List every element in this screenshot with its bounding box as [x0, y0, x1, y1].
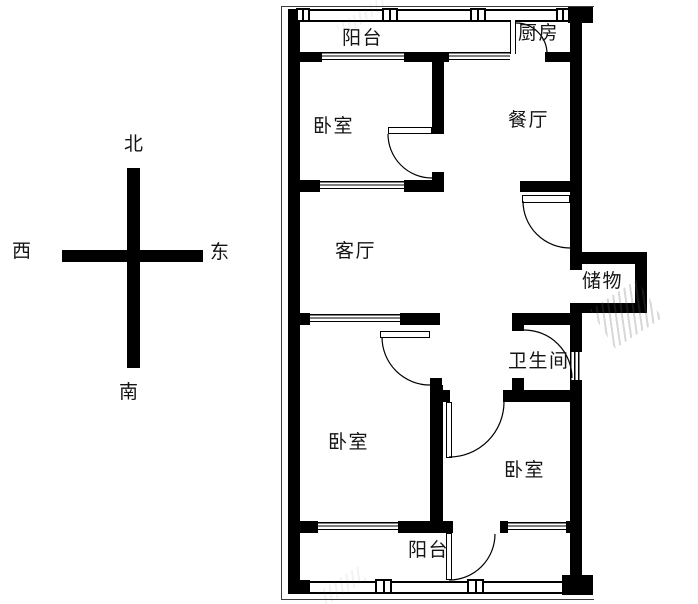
door-arc-balcony-south: [449, 534, 495, 580]
door-arc-bedroom-southwest: [382, 337, 430, 385]
door-arc-bedroom-north: [388, 134, 432, 178]
room-label-storage: 储物: [582, 272, 623, 292]
room-label-bathroom: 卫生间: [508, 352, 570, 372]
floor-plan-canvas: 北 南 西 东: [0, 0, 698, 604]
room-label-bedroom-southeast: 卧室: [504, 461, 545, 481]
door-arcs-layer: [0, 0, 698, 604]
room-label-bedroom-southwest: 卧室: [328, 433, 369, 453]
door-arc-bedroom-southeast: [449, 402, 504, 457]
door-arc-dining: [523, 201, 570, 248]
room-label-kitchen: 厨房: [518, 24, 559, 44]
room-label-living: 客厅: [335, 242, 376, 262]
room-label-balcony-south: 阳台: [408, 541, 449, 561]
room-label-dining: 餐厅: [508, 111, 549, 131]
room-label-bedroom-north: 卧室: [313, 117, 354, 137]
